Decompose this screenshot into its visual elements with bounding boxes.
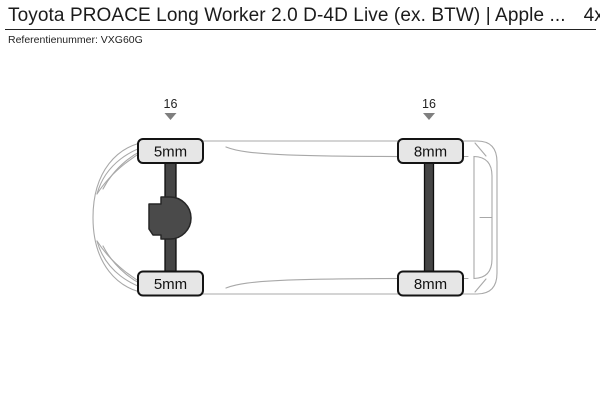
header: Toyota PROACE Long Worker 2.0 D-4D Live … (5, 0, 596, 46)
rear-rim-size-label: 16 (422, 97, 436, 111)
windshield-line (97, 241, 163, 293)
front-rim-size-label: 16 (164, 97, 178, 111)
tire-front-top (138, 139, 203, 163)
front-differential (149, 197, 191, 239)
tire-diagram: 16 5mm 5mm 16 8mm 8mm (0, 0, 600, 400)
front-axle-arrow-icon (165, 113, 177, 120)
drivetrain-label: 4x2 (584, 4, 600, 27)
tire-rear-top (398, 139, 463, 163)
body-outline-path (93, 141, 497, 294)
rear-door-outline (474, 157, 492, 279)
tire-rear-bottom-tread: 8mm (414, 276, 447, 293)
roof-line (226, 147, 468, 157)
windshield-line (103, 145, 157, 190)
title-row: Toyota PROACE Long Worker 2.0 D-4D Live … (5, 0, 596, 30)
reference-label: Referentienummer: (8, 34, 98, 46)
tire-rear-top-tread: 8mm (414, 144, 447, 161)
tire-rear-bottom (398, 272, 463, 296)
tire-front-top-tread: 5mm (154, 144, 187, 161)
page-title: Toyota PROACE Long Worker 2.0 D-4D Live … (8, 4, 566, 27)
vehicle-top-view-svg: 16 5mm 5mm 16 8mm 8mm (0, 0, 600, 400)
rear-corner-line (475, 143, 486, 156)
windshield-line (97, 142, 163, 194)
rear-axle-group: 16 8mm 8mm (398, 97, 463, 296)
windshield-line (97, 142, 163, 194)
reference-row: Referentienummer: VXG60G (5, 30, 596, 46)
windshield-line (103, 246, 157, 291)
rear-axle-arrow-icon (423, 113, 435, 120)
vehicle-body-outline (93, 141, 497, 294)
tire-front-bottom-tread: 5mm (154, 276, 187, 293)
reference-value: VXG60G (101, 34, 143, 46)
rear-axle-bar (425, 151, 434, 283)
front-axle-bar (165, 151, 176, 283)
tire-front-bottom (138, 272, 203, 296)
rear-corner-line (475, 279, 486, 292)
front-axle-group: 16 5mm 5mm (138, 97, 203, 296)
roof-line (226, 278, 468, 288)
windshield-line (97, 241, 163, 293)
